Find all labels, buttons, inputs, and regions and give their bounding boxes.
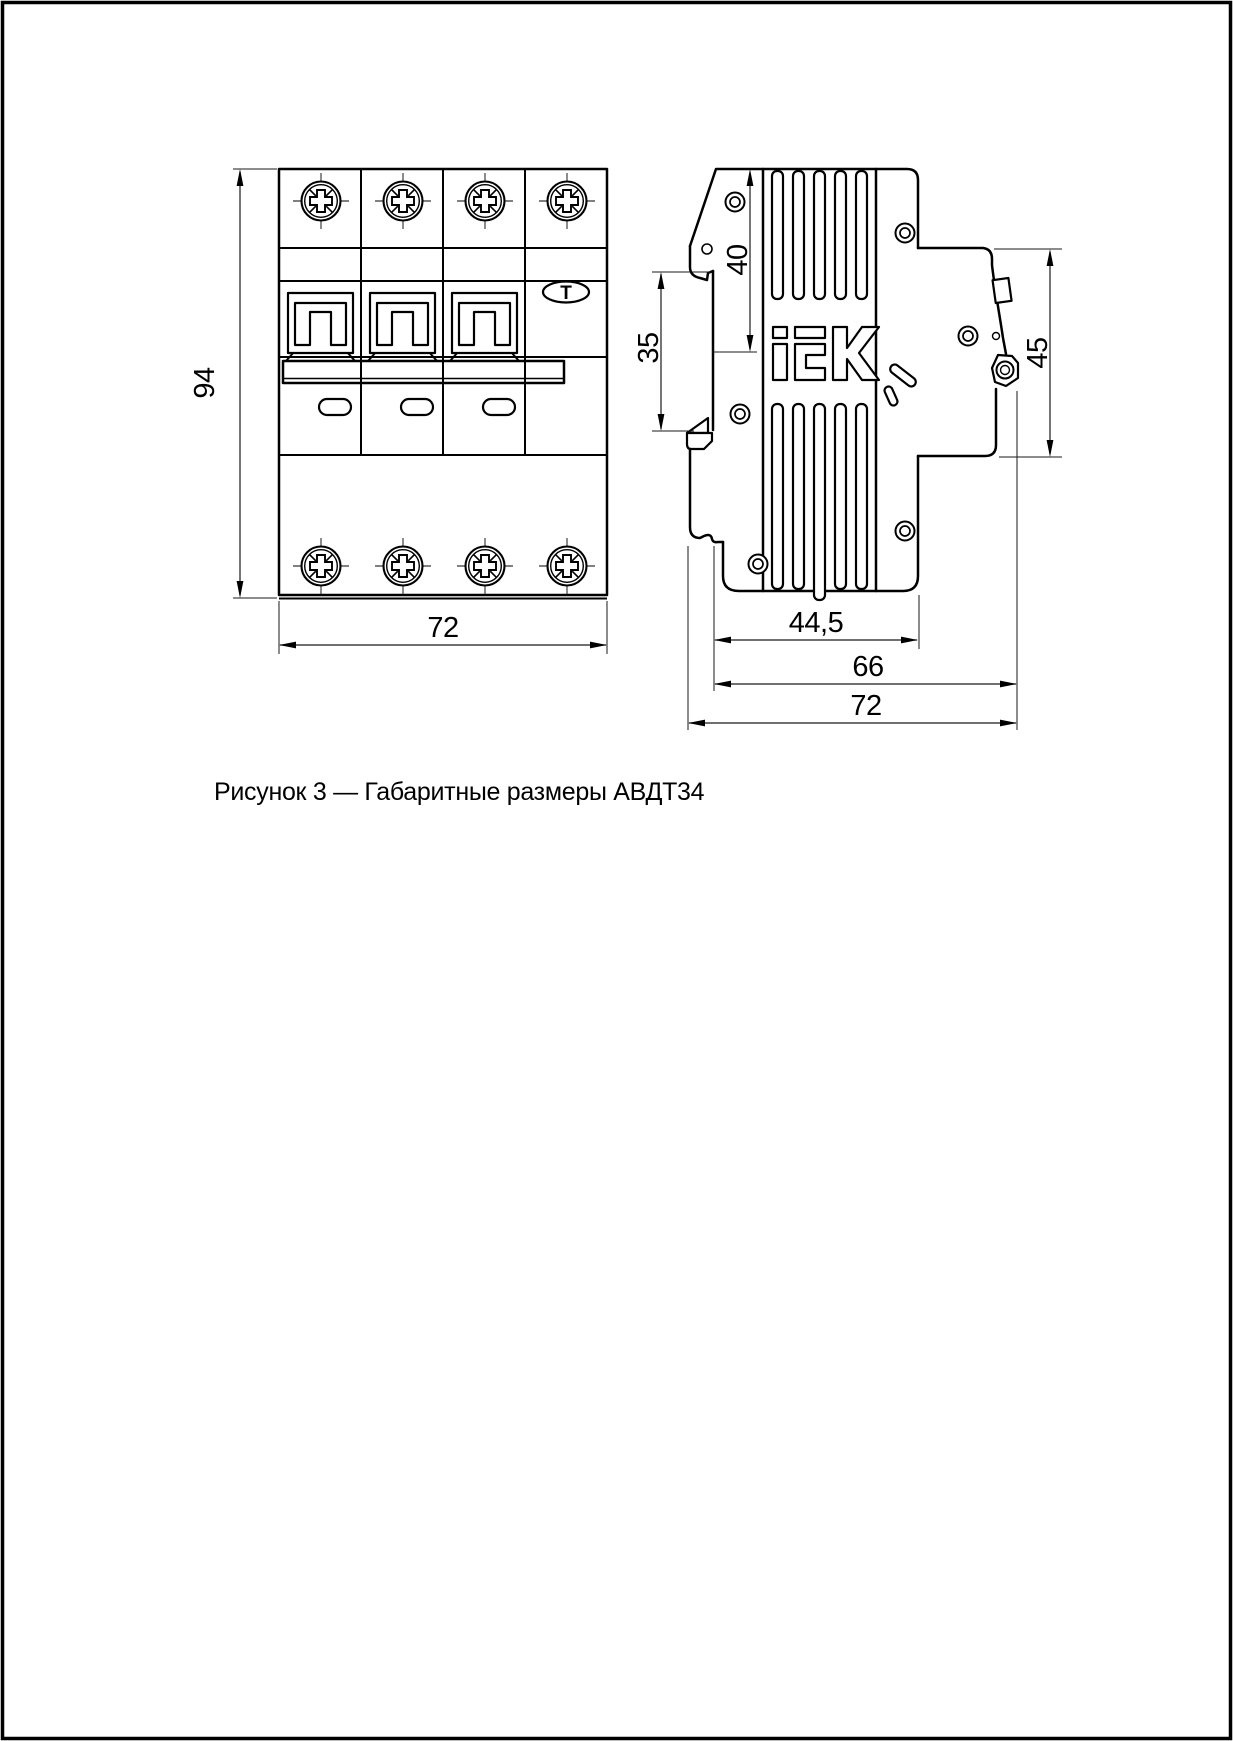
toggle-handle — [450, 293, 519, 361]
dim-label-44-5: 44,5 — [789, 607, 843, 639]
rivet-icon — [959, 327, 978, 346]
marking-windows — [319, 399, 515, 415]
test-button-label: T — [560, 283, 572, 304]
dim-35: 35 — [633, 272, 711, 431]
rivet-icon — [726, 193, 745, 212]
terminal-tab — [993, 278, 1012, 303]
vent-slots-top — [772, 171, 867, 299]
screw-icon — [293, 538, 349, 594]
dim-label-94: 94 — [189, 367, 221, 399]
front-view: T — [279, 169, 607, 599]
dim-72-side: 72 — [688, 546, 1017, 730]
rivet-icon — [896, 522, 915, 541]
vent-slots-bottom — [772, 404, 867, 600]
toggle-handle — [286, 293, 355, 361]
terminal-step-bottom — [918, 389, 996, 456]
toggle-handle — [368, 293, 437, 361]
din-latch — [687, 418, 723, 542]
iek-logo — [773, 327, 879, 380]
technical-drawing: T 94 72 — [0, 0, 1233, 1741]
rivet-icon — [731, 405, 750, 424]
side-view — [687, 169, 1018, 600]
test-button: T — [543, 282, 589, 305]
pole-tie-bar — [283, 361, 564, 383]
screw-icon — [375, 538, 431, 594]
small-hole — [993, 333, 1000, 340]
terminal-screw-hex — [992, 355, 1018, 386]
page-border — [3, 3, 1231, 1739]
screw-icon — [457, 538, 513, 594]
screw-icon — [375, 173, 431, 229]
dim-label-72-side: 72 — [850, 690, 881, 722]
dim-label-45: 45 — [1022, 337, 1054, 368]
dim-label-66: 66 — [852, 651, 883, 683]
dim-72-front: 72 — [279, 601, 607, 654]
pivot-hole — [702, 244, 712, 254]
screw-icon — [457, 173, 513, 229]
figure-caption: Рисунок 3 — Габаритные размеры АВДТ34 — [214, 778, 705, 806]
screw-terminals-bottom — [293, 538, 595, 594]
screw-icon — [539, 173, 595, 229]
document-page: T 94 72 — [0, 0, 1233, 1741]
rivet-icon — [749, 555, 768, 574]
rivet-icon — [896, 224, 915, 243]
dim-label-40: 40 — [722, 244, 754, 275]
dim-94: 94 — [189, 169, 277, 598]
screw-icon — [293, 173, 349, 229]
dim-label-35: 35 — [633, 332, 665, 363]
screw-icon — [539, 538, 595, 594]
dim-label-72-front: 72 — [427, 612, 458, 644]
toggle-side-marks — [883, 363, 917, 407]
